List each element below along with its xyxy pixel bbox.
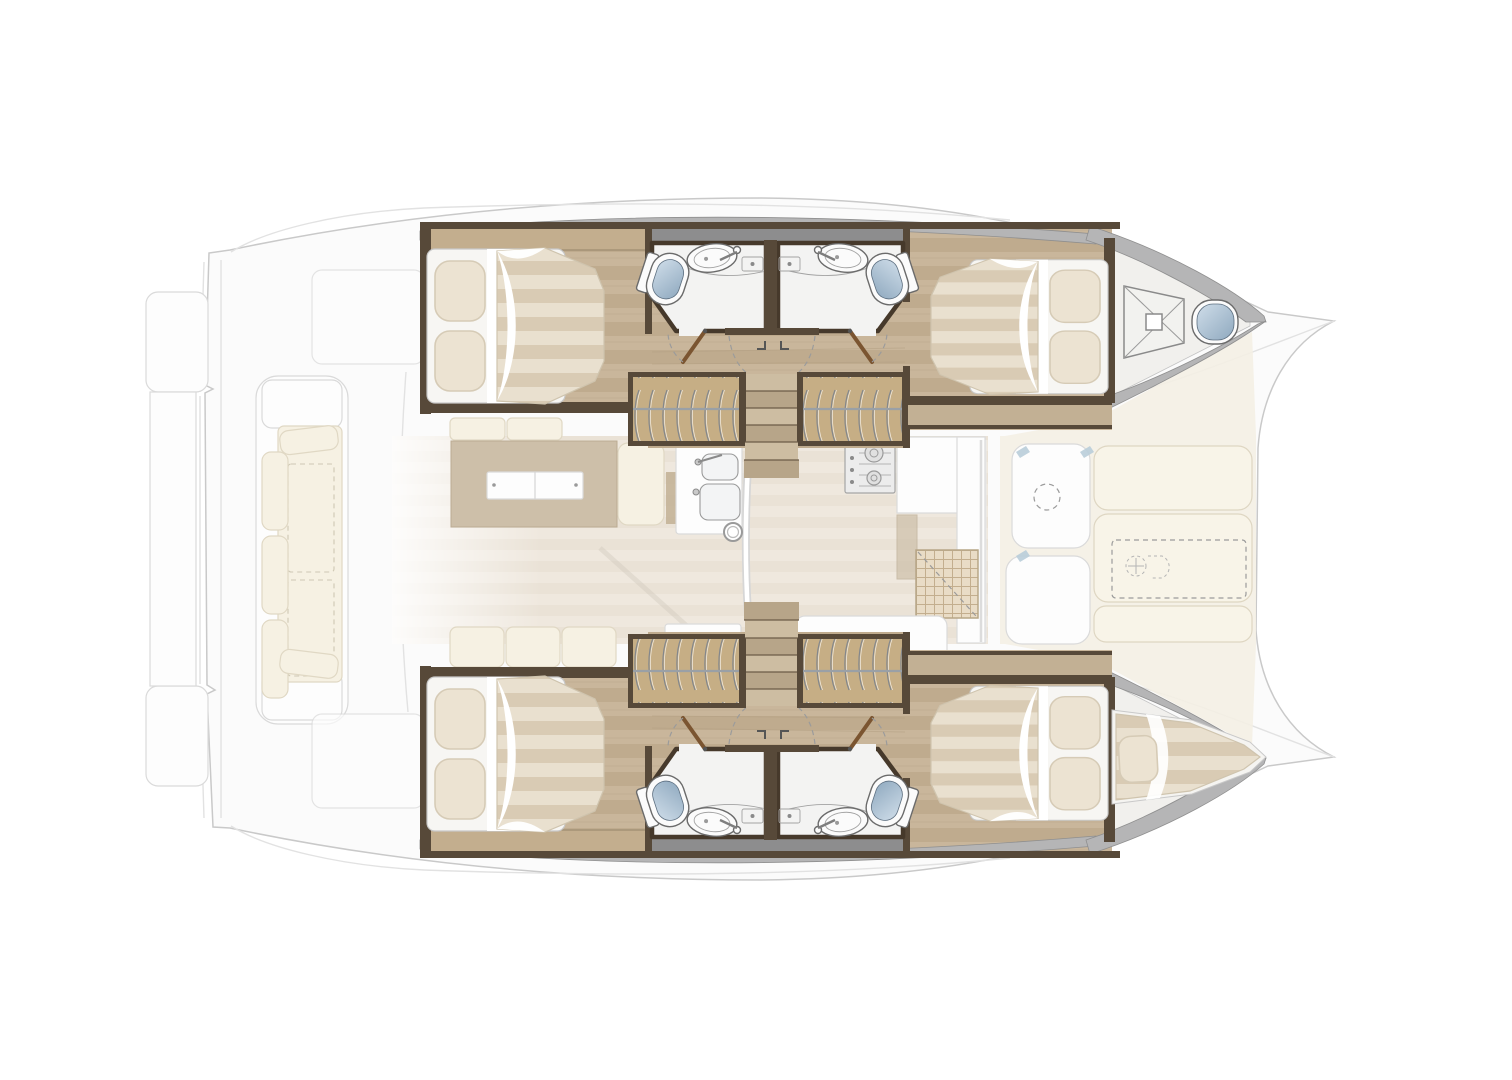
cockpit-seat [312,270,424,364]
foredeck-seat [1006,556,1090,644]
swim-step [146,292,208,392]
floor-plan-page [0,0,1512,1080]
sun-pad [1094,606,1252,642]
galley-sink-unit [666,440,742,541]
forepeak-toilet [1192,300,1238,344]
sun-pad [1094,446,1252,510]
foredeck-seat [1012,444,1090,548]
helm-grid-mat [916,550,978,618]
sun-pad [1094,514,1252,602]
swim-platform [150,392,196,686]
cockpit-bench [256,376,348,724]
swim-step [146,686,208,786]
cockpit-seat [312,714,424,808]
porthole-icon [724,523,742,541]
catamaran-floor-plan [0,0,1512,1080]
